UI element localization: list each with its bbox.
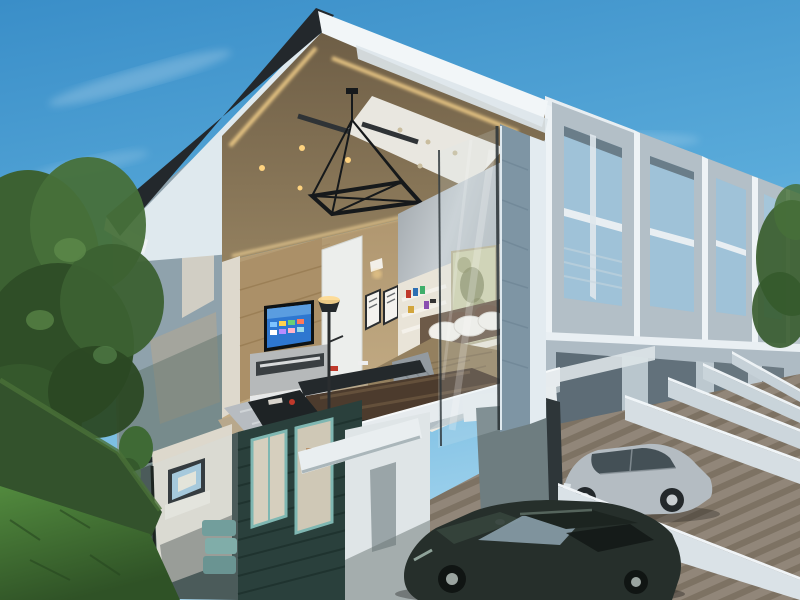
teal-framed-window	[296, 419, 332, 533]
frame-reveal	[545, 96, 552, 334]
unit-frame-1	[545, 96, 634, 338]
dark-car-rim	[446, 573, 458, 585]
unit-frame-2	[634, 130, 702, 340]
side-mirror	[495, 519, 505, 525]
table-decor	[289, 399, 295, 405]
white-decor	[358, 361, 368, 365]
white-pillar	[222, 256, 240, 418]
architectural-render	[0, 0, 800, 600]
unit-frame-3	[702, 156, 752, 342]
frame-reveal	[702, 156, 708, 341]
render-canvas	[0, 0, 800, 600]
dark-car-rim	[631, 577, 641, 587]
glass-mullion	[497, 126, 499, 430]
sconce-glow	[372, 269, 382, 279]
bluegray-column	[500, 124, 530, 432]
lamp-glow	[318, 296, 340, 304]
chandelier-mount	[346, 88, 358, 94]
frame-reveal	[634, 130, 640, 338]
glass-mullion	[590, 134, 596, 300]
silver-car-rim	[667, 495, 678, 506]
white-corner-trim	[530, 136, 546, 424]
teal-siding	[238, 400, 362, 600]
red-decor	[330, 366, 338, 371]
